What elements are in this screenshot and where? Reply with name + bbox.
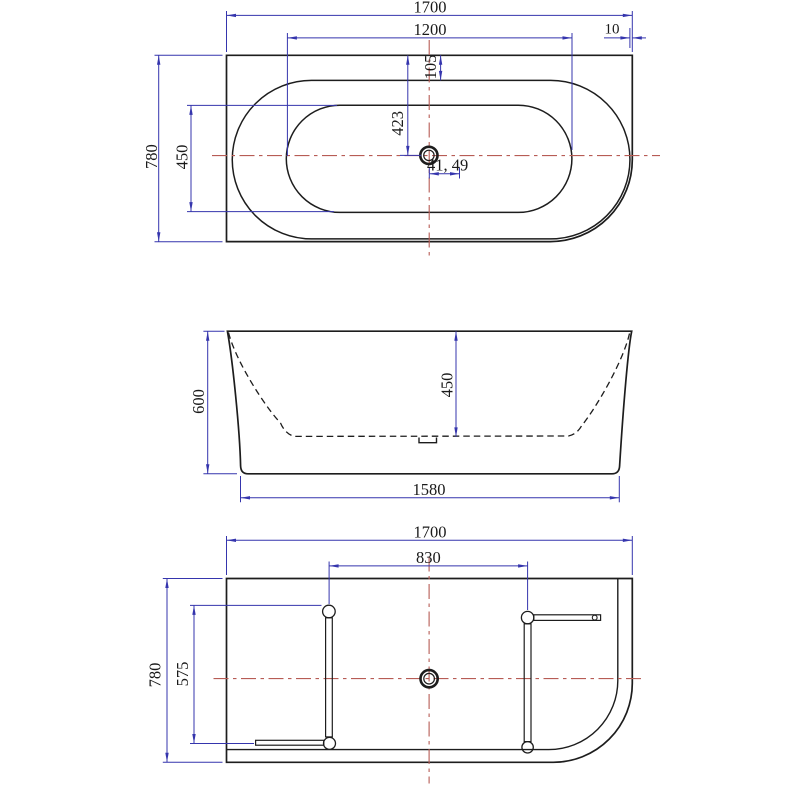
svg-text:105: 105 [421,55,440,80]
svg-text:423: 423 [388,111,407,136]
svg-text:830: 830 [416,548,441,567]
svg-text:450: 450 [438,373,457,398]
svg-text:1700: 1700 [414,0,447,17]
svg-text:780: 780 [142,144,161,169]
svg-text:575: 575 [173,662,192,687]
svg-text:10: 10 [605,22,620,38]
svg-text:450: 450 [172,145,191,170]
svg-text:1580: 1580 [413,480,446,499]
svg-text:600: 600 [189,389,208,414]
svg-text:780: 780 [145,663,164,688]
svg-text:1200: 1200 [414,20,447,39]
svg-text:41, 49: 41, 49 [427,156,468,175]
svg-text:1700: 1700 [414,523,447,542]
